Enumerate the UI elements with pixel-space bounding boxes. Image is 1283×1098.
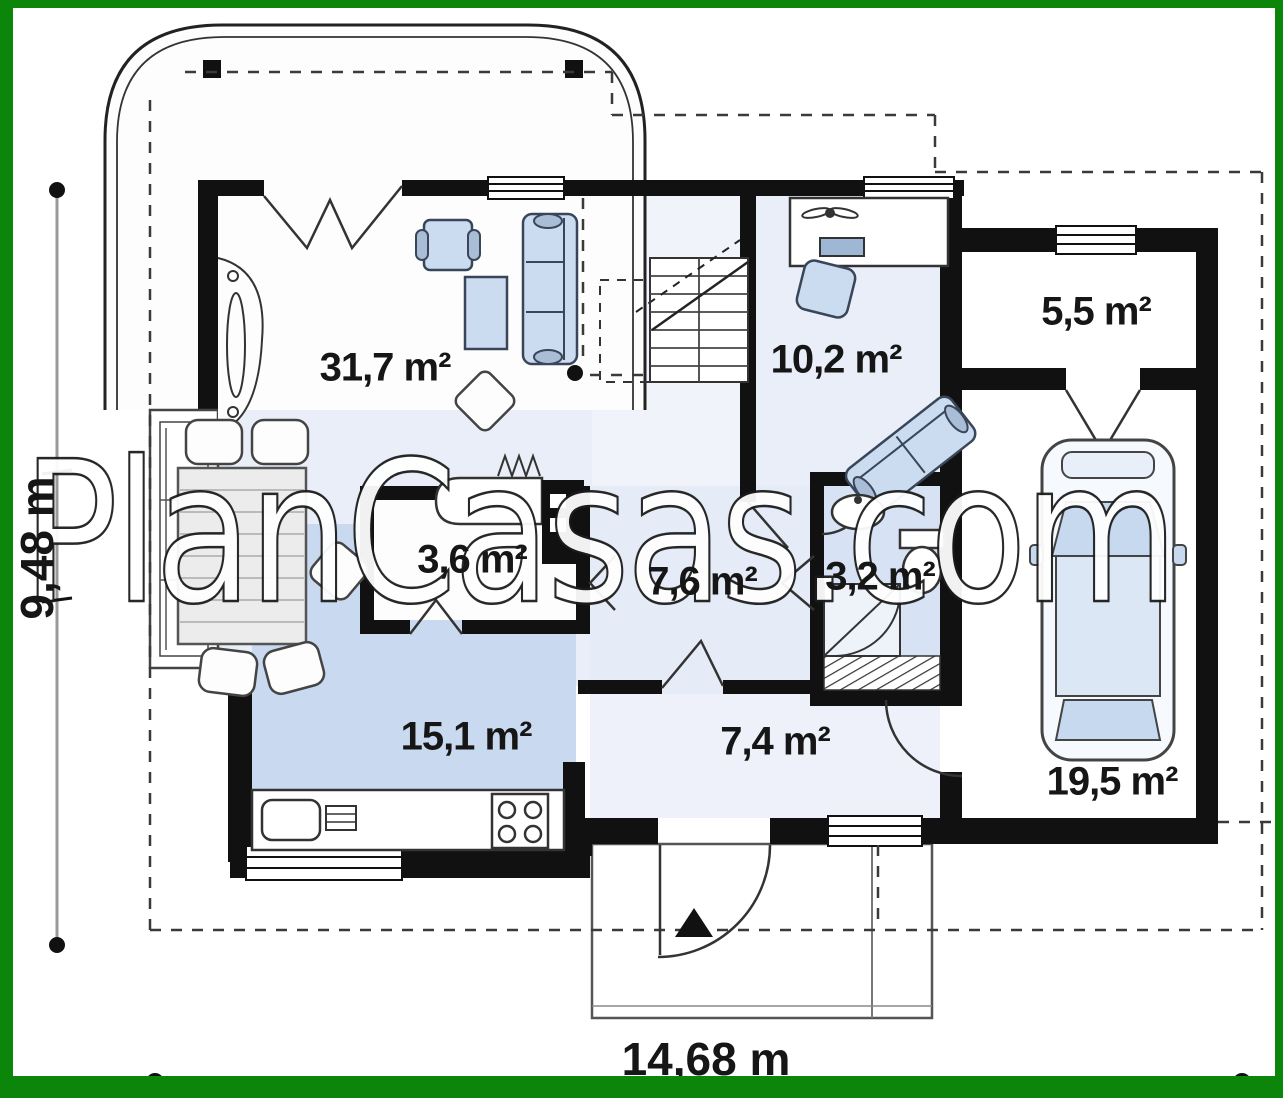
wardrobe-hatch [824, 656, 940, 690]
dimension-width-label: 14,68 m [622, 1032, 791, 1086]
terrace-post [203, 60, 221, 78]
armchair [416, 220, 480, 270]
room-label-pantry: 3,6 m² [417, 538, 527, 583]
side-table [465, 277, 507, 349]
window [488, 177, 564, 199]
kitchen-counter [252, 790, 564, 850]
room-label-bathroom: 3,2 m² [825, 555, 935, 600]
room-label-garage: 19,5 m² [1047, 760, 1178, 805]
room-label-kitchen: 15,1 m² [401, 715, 532, 760]
monitor [820, 238, 864, 256]
room-label-hall: 7,6 m² [647, 560, 757, 605]
room-label-living: 31,7 m² [320, 346, 451, 391]
window [864, 177, 954, 199]
desk [790, 198, 948, 266]
terrace-post [565, 60, 583, 78]
sofa [523, 214, 577, 364]
dimension-height-label: 9,48 m [10, 476, 64, 619]
room-label-entry: 7,4 m² [720, 720, 830, 765]
room-label-storage: 5,5 m² [1041, 290, 1151, 335]
floorplan-page: PlanCasas.com 31,7 m² 10,2 m² 5,5 m² 3,6… [0, 0, 1283, 1098]
window [828, 816, 922, 846]
room-label-office: 10,2 m² [771, 338, 902, 383]
reference-dot [567, 365, 583, 381]
watermark: PlanCasas.com [22, 420, 1175, 648]
stove [492, 794, 548, 848]
desk-chair [795, 258, 858, 319]
window [1056, 226, 1136, 254]
